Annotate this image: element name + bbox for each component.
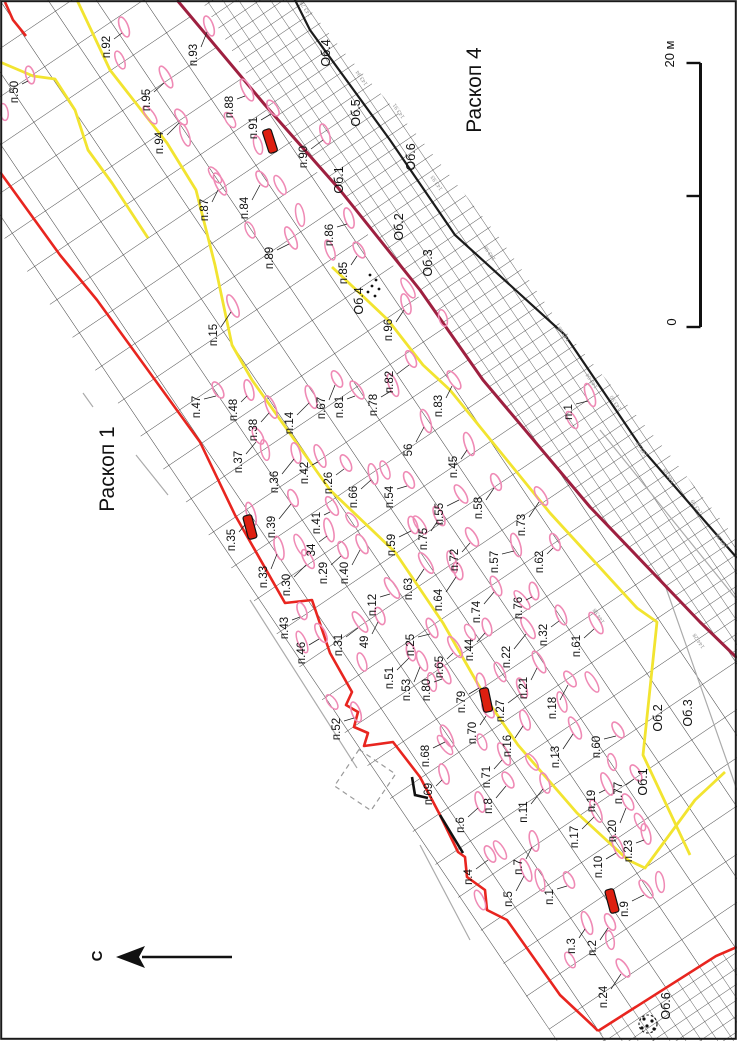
burial-label: п.51 <box>384 667 396 689</box>
excavation-plan-svg: п.50п.92п.95п.94п.93п.88п.91п.90п.87п.84… <box>0 0 737 1041</box>
stone-dot <box>375 279 378 282</box>
burial-label: п.14 <box>284 411 296 434</box>
burial-label: п.31 <box>333 634 345 656</box>
burial-label: п.35 <box>226 529 238 551</box>
burial-label: п.29 <box>318 562 330 584</box>
burial-label: п.76 <box>513 597 525 619</box>
burial-label: п.67 <box>316 397 328 419</box>
burial-label: п.11 <box>518 801 530 822</box>
burial-label: п.5 <box>503 891 515 907</box>
stone-dot <box>642 1017 645 1020</box>
burial-label: п.57 <box>489 551 501 573</box>
burial-label: п.2 <box>587 940 599 956</box>
burial-label: п.1 <box>563 404 575 420</box>
burial-label: п.58 <box>473 497 485 519</box>
burial-label: п.64 <box>433 588 445 611</box>
burial-label: п.9 <box>619 901 631 917</box>
object-label: Об.1 <box>332 166 346 193</box>
burial-label: п.90 <box>298 146 310 168</box>
burial-label: п.48 <box>228 399 240 421</box>
excavation-plan-page: п.50п.92п.95п.94п.93п.88п.91п.90п.87п.84… <box>0 0 737 1041</box>
object-label: Об.3 <box>681 699 695 726</box>
burial-label: п.52 <box>331 718 343 740</box>
burial-label: п.24 <box>598 985 610 1008</box>
burial-label: п.55 <box>434 503 446 525</box>
burial-label: п.6 <box>455 817 467 833</box>
object-label: Об.3 <box>421 249 435 276</box>
excavation-title: Раскоп 1 <box>96 426 119 511</box>
burial-label: 34 <box>306 543 318 556</box>
burial-label: п.78 <box>368 394 380 416</box>
burial-label: п.77 <box>613 782 625 804</box>
burial-label: п.86 <box>324 224 336 246</box>
burial-label: п.84 <box>239 196 251 219</box>
burial-label: п.88 <box>224 96 236 118</box>
stone-dot <box>645 1024 648 1027</box>
burial-label: п.47 <box>191 396 203 418</box>
burial-label: п.53 <box>401 679 413 701</box>
burial-label: п.68 <box>420 745 432 767</box>
burial-label: п.73 <box>516 514 528 536</box>
burial-label: п.70 <box>467 722 479 744</box>
burial-label: п.7 <box>513 859 525 875</box>
burial-label: п.26 <box>323 472 335 494</box>
burial-label: п.71 <box>481 766 493 788</box>
stone-dot <box>374 295 377 298</box>
stone-dot <box>369 274 372 277</box>
burial-label: п.62 <box>534 551 546 573</box>
burial-label: п.25 <box>405 634 417 656</box>
burial-label: п.85 <box>338 262 350 284</box>
burial-label: п.45 <box>448 456 460 478</box>
burial-label: п.1 <box>544 889 556 905</box>
burial-label: п.59 <box>386 534 398 556</box>
burial-label: п.4 <box>463 868 475 884</box>
object-label: Об.4 <box>352 287 366 314</box>
burial-label: п.39 <box>266 516 278 538</box>
burial-label: п.87 <box>199 199 211 221</box>
burial-label: п.69 <box>423 783 435 805</box>
burial-label: п.13 <box>550 746 562 768</box>
burial-label: п.81 <box>334 396 346 418</box>
burial-label: п.79 <box>456 691 468 713</box>
stone-dot <box>640 1026 643 1029</box>
burial-label: п.93 <box>188 44 200 66</box>
burial-label: п.27 <box>495 700 507 722</box>
burial-label: 56 <box>403 444 415 457</box>
burial-label: п.37 <box>233 451 245 473</box>
object-label: Об.6 <box>404 143 418 170</box>
burial-label: п.72 <box>449 549 461 571</box>
burial-label: п.60 <box>591 736 603 758</box>
burial-label: п.74 <box>471 600 483 623</box>
burial-label: п.33 <box>258 566 270 588</box>
burial-label: п.20 <box>607 820 619 842</box>
burial-label: п.50 <box>9 81 21 103</box>
burial-label: п.19 <box>586 790 598 812</box>
burial-label: п.91 <box>248 117 260 139</box>
burial-label: п.40 <box>339 562 351 584</box>
stone-dot <box>371 285 374 288</box>
burial-label: п.23 <box>623 840 635 862</box>
scale-label-20m: 20 м <box>662 40 677 67</box>
burial-label: п.82 <box>384 371 396 393</box>
object-label: Об.2 <box>651 704 665 731</box>
burial-label: п.30 <box>281 574 293 596</box>
burial-label: 49 <box>359 636 371 649</box>
burial-label: п.12 <box>367 594 379 616</box>
burial-label: п.3 <box>566 938 578 954</box>
burial-label: п.38 <box>248 419 260 441</box>
burial-label: п.89 <box>264 247 276 269</box>
burial-label: п.46 <box>296 642 308 664</box>
burial-label: п.44 <box>464 638 476 661</box>
burial-label: п.80 <box>421 679 433 701</box>
object-label: Об.1 <box>636 768 650 795</box>
burial-label: п.66 <box>348 486 360 508</box>
scale-label-0: 0 <box>664 318 679 325</box>
burial-label: п.17 <box>569 826 581 848</box>
burial-label: п.92 <box>101 36 113 58</box>
burial-label: п.36 <box>269 471 281 493</box>
burial-label: п.41 <box>311 512 323 534</box>
object-label: Об.4 <box>319 39 333 66</box>
burial-label: п.15 <box>208 324 220 346</box>
burial-label: п.65 <box>434 656 446 678</box>
stone-dot <box>650 1019 653 1022</box>
burial-label: п.22 <box>501 646 513 668</box>
burial-label: п.54 <box>384 485 396 508</box>
stone-dot <box>367 291 370 294</box>
burial-label: п.75 <box>418 528 430 550</box>
burial-label: п.18 <box>547 697 559 719</box>
burial-label: п.95 <box>141 89 153 111</box>
stone-dot <box>378 288 381 291</box>
north-label: С <box>89 950 106 961</box>
object-label: Об.5 <box>349 99 363 126</box>
burial-label: п.21 <box>518 677 530 699</box>
stone-dot <box>652 1027 655 1030</box>
burial-label: п.83 <box>433 395 445 417</box>
burial-label: п.16 <box>502 735 514 757</box>
excavation-title: Раскоп 4 <box>463 47 486 133</box>
burial-label: п.10 <box>593 856 605 878</box>
object-label: Об.6 <box>659 992 673 1019</box>
burial-label: п.94 <box>154 131 166 154</box>
burial-label: п.63 <box>403 578 415 600</box>
burial-label: п.32 <box>538 624 550 646</box>
object-label: Об.2 <box>392 213 406 240</box>
burial-label: п.96 <box>383 319 395 341</box>
burial-label: п.42 <box>299 462 311 484</box>
burial-label: п.61 <box>571 635 583 657</box>
burial-label: п.8 <box>483 798 495 814</box>
burial-label: п.43 <box>279 617 291 639</box>
